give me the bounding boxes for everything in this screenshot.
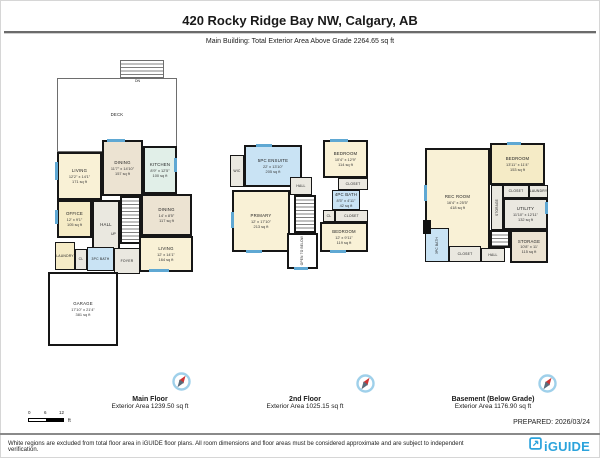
room-3pc-bath-main: 3PC BATH (87, 247, 114, 271)
room-closet-2f-1: CLOSET (338, 178, 368, 190)
prepared-date: PREPARED: 2026/03/24 (513, 419, 590, 426)
room-4pc-bath: 4PC BATH 8'5" x 4'11" 42 sq ft (332, 190, 360, 210)
second-floor-caption: 2nd Floor Exterior Area 1025.15 sq ft (215, 396, 395, 410)
room-bedroom-2f-2: BEDROOM 12' x 9'11" 119 sq ft (320, 222, 368, 252)
room-living-main: LIVING 12'2" x 14'1" 171 sq ft (57, 152, 102, 200)
room-garage: GARAGE 17'10" x 21'4" 381 sq ft (48, 272, 118, 346)
main-floor-plan: DN DECK DINING 11'7" x 14'10" 157 sq ft … (35, 60, 225, 348)
room-hall-main: HALL (92, 200, 120, 250)
title-divider (4, 31, 596, 34)
room-closet-2f-2: CLOSET (335, 210, 368, 222)
window (507, 142, 521, 145)
window (246, 250, 262, 253)
room-dining-main: DINING 11'7" x 14'10" 157 sq ft (102, 140, 143, 196)
iguide-logo-text: iGUIDE (544, 439, 590, 454)
room-office: OFFICE 12' x 9'1" 105 sq ft (57, 200, 92, 238)
compass-icon (538, 374, 557, 398)
basement-plan: REC ROOM 16'4" x 25'5" 418 sq ft BEDROOM… (423, 140, 551, 270)
window (424, 185, 427, 201)
main-floor-caption: Main Floor Exterior Area 1239.50 sq ft (60, 396, 240, 410)
window (330, 139, 348, 142)
room-dining-nook: DINING 14' x 8'5" 117 sq ft (141, 194, 192, 236)
room-living-family: LIVING 12' x 14'1" 164 sq ft (139, 236, 193, 272)
window (174, 158, 177, 172)
room-laundry-main: LAUNDRY (55, 242, 75, 270)
second-floor-plan: 5PC ENSUITE 22' x 13'10" 205 sq ft WIC B… (228, 137, 372, 307)
window (294, 267, 308, 270)
stairs-up-label: UP (111, 232, 116, 236)
room-bedroom-2f-1: BEDROOM 10'4" x 12'9" 114 sq ft (323, 140, 368, 178)
basement-caption: Basement (Below Grade) Exterior Area 117… (403, 396, 583, 410)
disclaimer-text: White regions are excluded from total fl… (8, 441, 478, 453)
room-closet-bsmt-2: CLOSET (449, 246, 481, 262)
window (149, 269, 169, 272)
window (231, 212, 234, 228)
stairs-deck-dn (120, 60, 164, 78)
compass-icon (356, 374, 375, 398)
scale-bar: 0 6 12 ft (28, 410, 108, 426)
room-primary: PRIMARY 12' x 17'10" 213 sq ft (232, 190, 290, 252)
window (545, 202, 548, 214)
stairs-bsmt (490, 230, 510, 248)
room-storage-narrow: STORAGE (491, 185, 503, 230)
room-wic: WIC (230, 155, 244, 187)
room-utility: UTILITY 11'10" x 12'11" 132 sq ft (503, 198, 548, 230)
stairs-2f-dn (294, 195, 316, 233)
stairs-dn-label: DN (135, 79, 140, 83)
floor-plan-sheet: 420 Rocky Ridge Bay NW, Calgary, AB Main… (0, 0, 600, 458)
room-laundry-bsmt: LAUNDRY (529, 185, 548, 198)
room-closet-cl-2f: CL (323, 210, 335, 222)
page-subtitle: Main Building: Total Exterior Area Above… (0, 38, 600, 45)
room-closet-cl-main: CL (75, 249, 87, 270)
room-foyer: FOYER (114, 248, 140, 274)
wall-fill (423, 220, 431, 234)
room-kitchen: KITCHEN 8'9" x 12'5" 100 sq ft (143, 146, 177, 194)
stairs-up (120, 196, 141, 244)
room-hall-2f: HALL (290, 177, 312, 195)
window (107, 139, 125, 142)
window (55, 210, 58, 224)
compass-icon (172, 372, 191, 396)
room-hall-bsmt: HALL (481, 248, 505, 262)
footer-divider (0, 433, 600, 435)
room-closet-bsmt-1: CLOSET (503, 185, 529, 198)
window (256, 144, 272, 147)
window (330, 250, 346, 253)
room-storage-bsmt: STORAGE 10'8" x 11' 115 sq ft (510, 230, 548, 263)
iguide-logo-icon (529, 437, 542, 455)
iguide-logo: iGUIDE (529, 437, 590, 455)
page-title: 420 Rocky Ridge Bay NW, Calgary, AB (0, 13, 600, 28)
room-bedroom-bsmt: BEDROOM 13'11" x 11'4" 153 sq ft (490, 143, 545, 185)
window (55, 162, 58, 180)
open-to-below: OPEN TO BELOW (287, 233, 318, 269)
